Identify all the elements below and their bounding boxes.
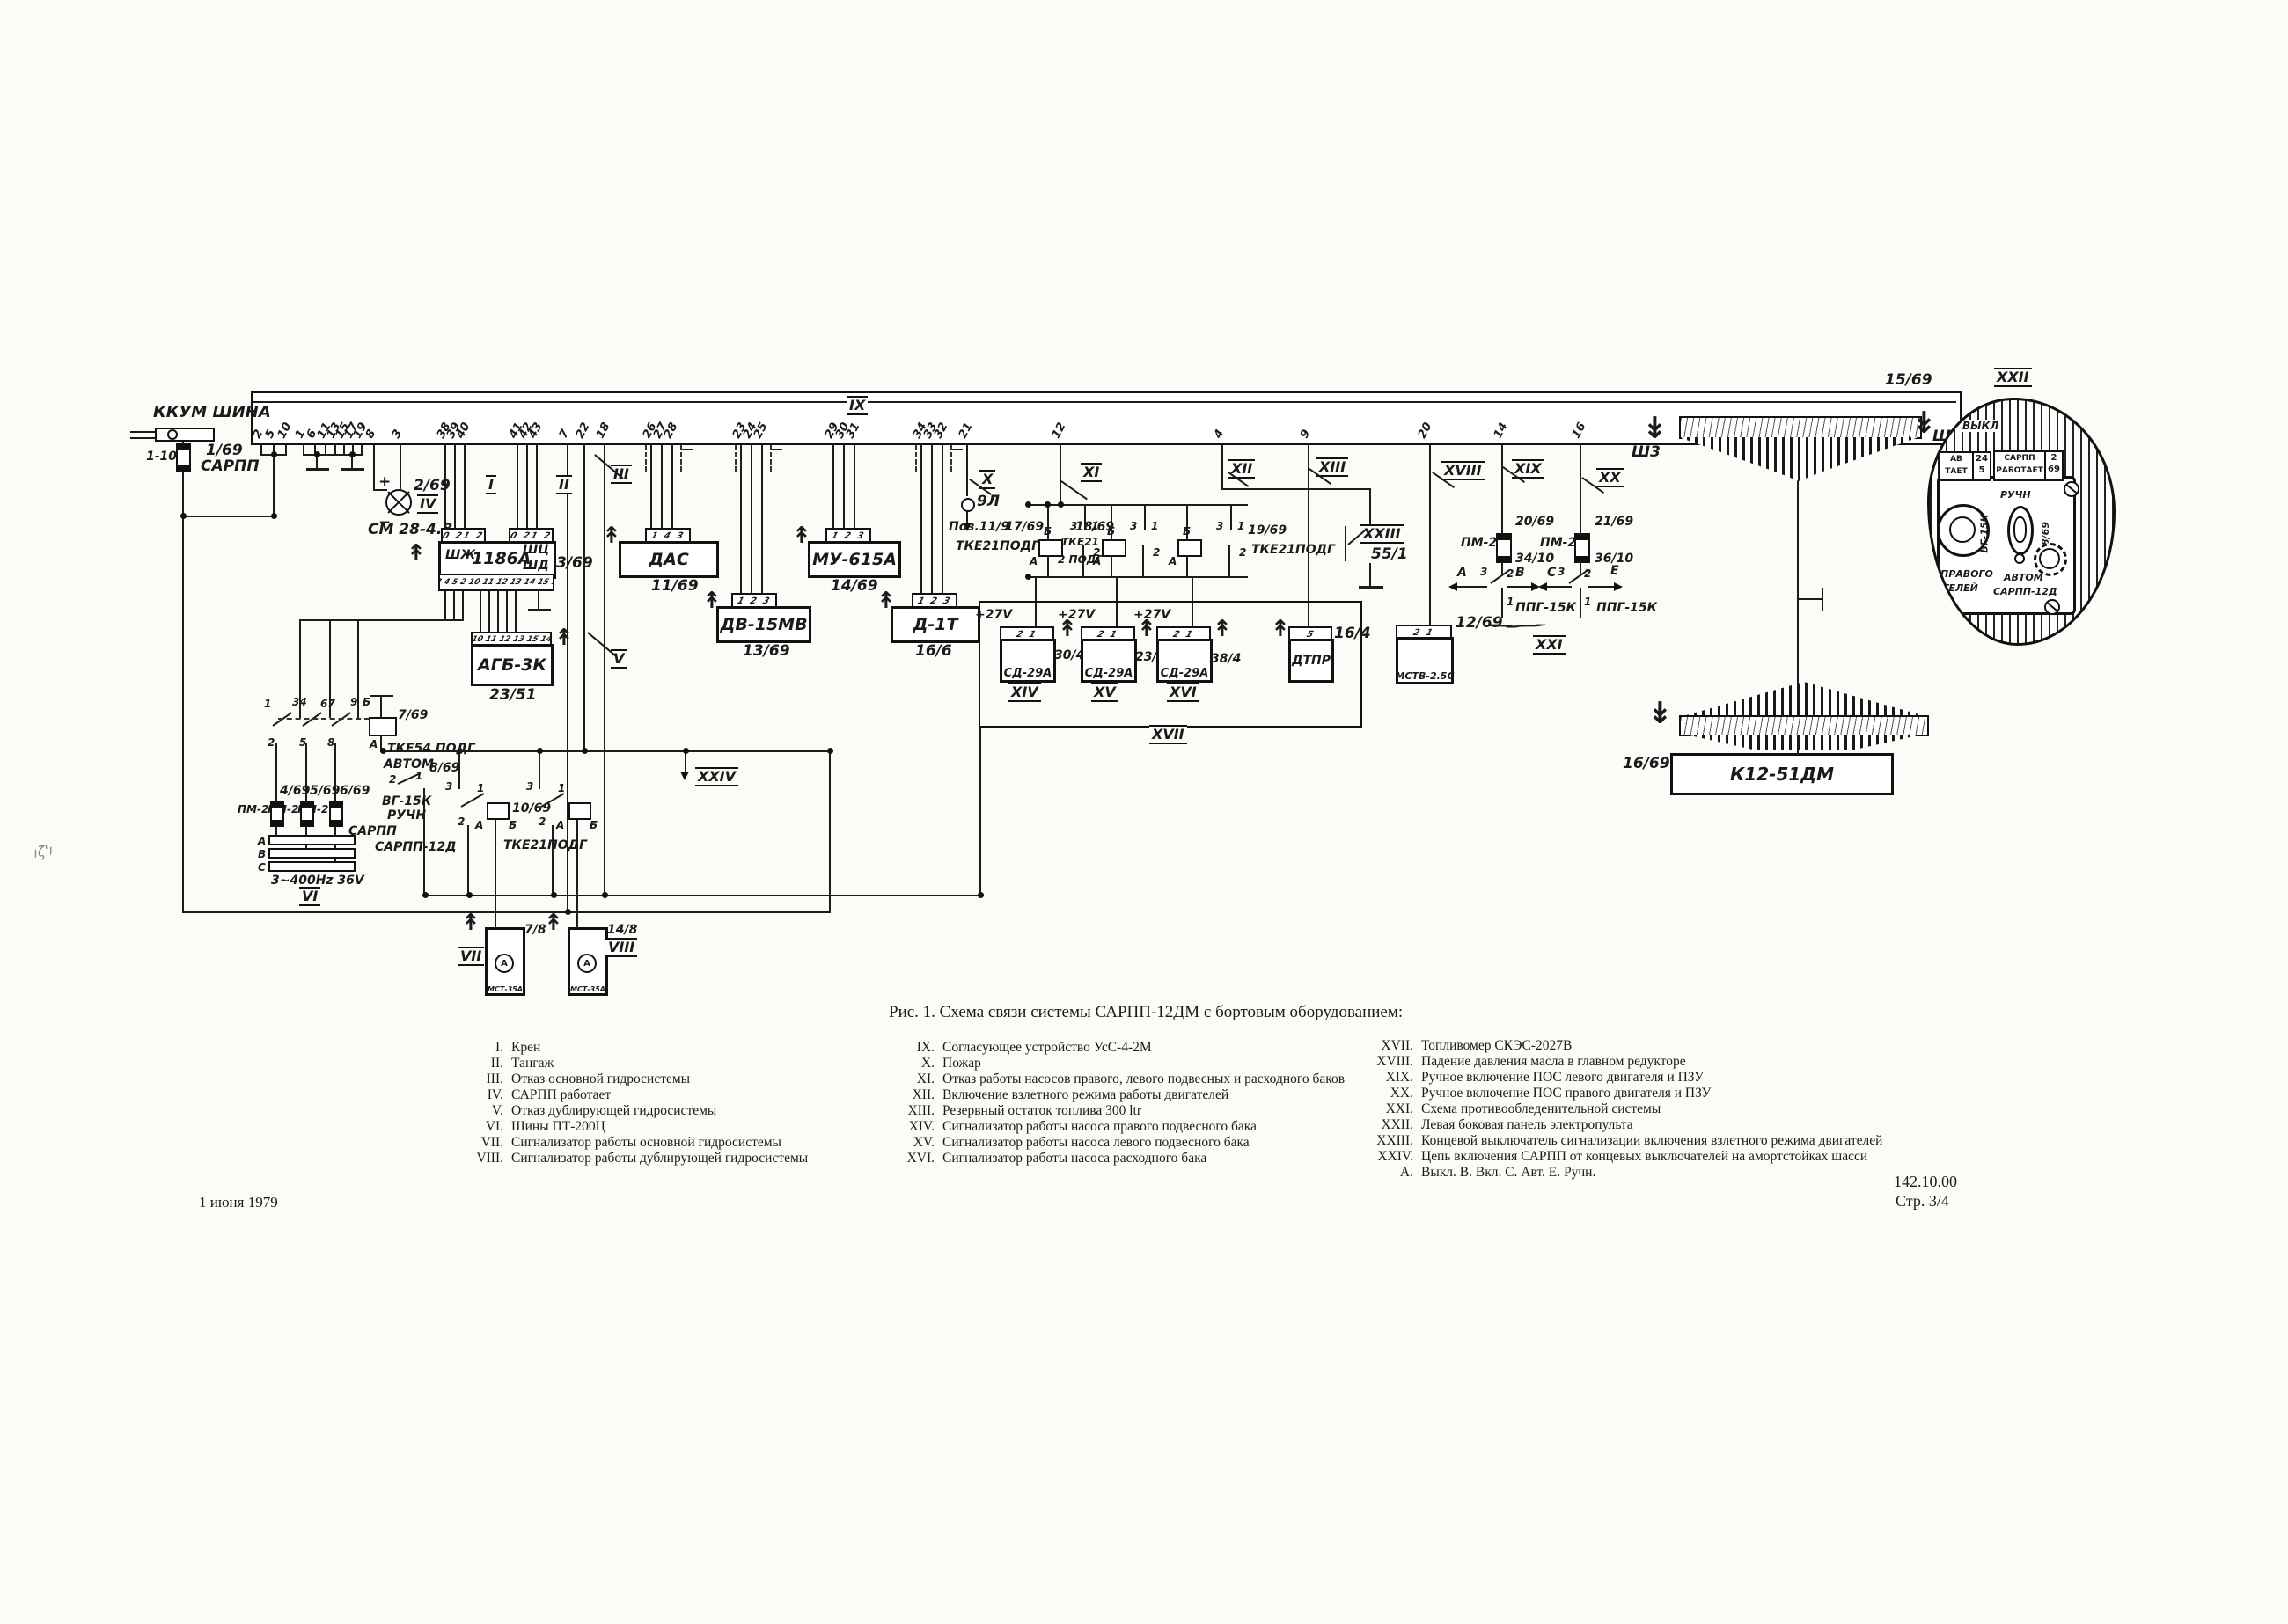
- tke54-ref: 7/69: [398, 709, 428, 721]
- legend-text: Падение давления масла в главном редукто…: [1421, 1054, 1686, 1070]
- tag-viii: VIII: [605, 938, 637, 957]
- panel-connector-inner: [2039, 548, 2060, 569]
- wire: [1588, 586, 1617, 588]
- legend-text: Сигнализатор работы дублирующей гидросис…: [511, 1151, 808, 1167]
- r10b-coil: [568, 802, 591, 820]
- sarpp-label: САРПП: [348, 825, 397, 838]
- contact-3: 3: [1130, 521, 1137, 531]
- panel-txt2: ТЕЛЕЙ: [1942, 583, 1978, 593]
- legend-numeral: XXIII.: [1345, 1133, 1421, 1149]
- arrow-up-icon: ↟: [407, 542, 426, 565]
- mst2-sym: А: [577, 954, 597, 973]
- legend-numeral: IV.: [458, 1087, 511, 1103]
- wire: [1111, 554, 1112, 578]
- phase-bar-b: [268, 848, 356, 859]
- feeder-ref: 1/69: [206, 443, 243, 458]
- legend-item: XVI.Сигнализатор работы насоса расходног…: [880, 1151, 1373, 1167]
- legend-text: Крен: [511, 1040, 540, 1056]
- pins: 3 4 5 2 10 11 12 13 14 15 1: [438, 578, 554, 587]
- pins: 2 1: [1016, 630, 1039, 640]
- ind1-text: АВТАЕТ: [1940, 453, 1972, 479]
- panel-ruchn: РУЧН: [2000, 490, 2031, 500]
- legend-numeral: I.: [458, 1040, 511, 1056]
- panel-ind-sarpp: САРППРАБОТАЕТ 269: [1993, 450, 2064, 481]
- legend-text: Сигнализатор работы основной гидросистем…: [511, 1135, 781, 1151]
- mu-box: МУ-615А: [808, 541, 901, 578]
- legend-text: Левая боковая панель электропульта: [1421, 1117, 1633, 1133]
- legend-text: Ручное включение ПОС правого двигателя и…: [1421, 1086, 1711, 1101]
- legend-item: VI.Шины ПТ-200Ц: [458, 1119, 836, 1135]
- wire: [1186, 554, 1188, 578]
- legend-item: XIII.Резервный остаток топлива 300 ltr: [880, 1103, 1373, 1119]
- leader: [1061, 480, 1088, 500]
- wire: [370, 695, 393, 697]
- wire: [1359, 586, 1383, 589]
- lamp-name: СМ 28-4.8: [368, 523, 452, 538]
- fuse-1-10: [176, 443, 191, 472]
- pins: 20 21 23: [441, 531, 486, 541]
- cb: Б: [363, 697, 370, 707]
- relay17-ref: 17/69: [1005, 521, 1044, 533]
- panel-vg: ВГ-15К: [1980, 514, 1990, 552]
- arrow-up-icon: ↟: [602, 524, 621, 547]
- dv-box: ДВ-15МВ: [716, 606, 811, 643]
- r10a-contact: [461, 793, 485, 808]
- wire: [1230, 506, 1232, 530]
- k12-box: К12-51ДМ: [1670, 753, 1894, 795]
- wire: [497, 588, 499, 632]
- c1: 1: [264, 699, 271, 709]
- n1: 1: [558, 783, 565, 794]
- legend-text: Концевой выключатель сигнализации включе…: [1421, 1133, 1882, 1149]
- mst1-sym: А: [495, 954, 514, 973]
- fuse20-ref: 20/69: [1515, 516, 1554, 528]
- avtom-label: АВТОМ: [384, 758, 434, 771]
- arrow-down-icon: [680, 772, 689, 780]
- ppg-label: ППГ-15К: [1596, 602, 1657, 614]
- legend-text: Шины ПТ-200Ц: [511, 1119, 605, 1135]
- pm2-label: ПМ-2: [238, 804, 268, 815]
- shield-symbol: [735, 445, 772, 472]
- junction-dot: [1025, 501, 1031, 508]
- xxi-brace: ⏟: [1491, 614, 1546, 626]
- wire: [495, 818, 496, 929]
- battery-bus-symbol: [155, 428, 215, 442]
- junction-dot: [1045, 501, 1051, 508]
- sw36-ref: 36/10: [1595, 552, 1633, 565]
- wire: [682, 449, 693, 450]
- dir-v: В: [1515, 567, 1525, 579]
- a: А: [475, 820, 483, 830]
- wire: [1544, 586, 1572, 588]
- a: А: [556, 820, 564, 830]
- wire: [464, 442, 466, 530]
- doc-page: Стр. 3/4: [1896, 1193, 1949, 1209]
- legend-numeral: II.: [458, 1056, 511, 1072]
- legend-numeral: XXIV.: [1345, 1149, 1421, 1165]
- wire: [130, 437, 157, 439]
- arrow-up-icon: ↟: [1271, 618, 1290, 640]
- legend-item: III.Отказ основной гидросистемы: [458, 1072, 836, 1087]
- legend-item: V.Отказ дублирующей гидросистемы: [458, 1103, 836, 1119]
- shield-symbol: [645, 445, 682, 472]
- mstv-box: МСТВ-2.5С: [1396, 637, 1454, 684]
- legend-text: Тангаж: [511, 1056, 554, 1072]
- pins: 1 2 3: [830, 531, 866, 541]
- legend-item: XIV.Сигнализатор работы насоса правого п…: [880, 1119, 1373, 1135]
- phase-c: С: [258, 862, 266, 873]
- legend-col2: IX.Согласующее устройство УсС-4-2МX.Пожа…: [880, 1040, 1373, 1167]
- doc-code: 142.10.00: [1894, 1174, 1957, 1189]
- r10b-contact: [541, 793, 565, 808]
- sd3-box: СД-29А: [1156, 639, 1213, 683]
- n3: 3: [1558, 567, 1565, 577]
- legend-item: XXI.Схема противообледенительной системы: [1345, 1101, 2040, 1117]
- tag-xxiv: XXIV: [695, 767, 738, 786]
- dtpr-box: ДТПР: [1288, 639, 1334, 683]
- pm2-label: ПМ-2: [1461, 537, 1497, 549]
- pm2-fuse-21: [1574, 533, 1590, 563]
- tag-xv: XV: [1091, 683, 1118, 702]
- legend-text: Отказ дублирующей гидросистемы: [511, 1103, 716, 1119]
- sw551-ref: 55/1: [1371, 547, 1408, 562]
- terminal-9l: [961, 498, 975, 512]
- n3: 3: [1480, 567, 1487, 577]
- tag-xxiii: XXIII: [1360, 524, 1404, 544]
- wire: [526, 442, 528, 530]
- wire: [1822, 588, 1823, 611]
- arrow-up-icon: ↟: [1213, 618, 1232, 640]
- r10a-coil: [487, 802, 510, 820]
- contact-link: [278, 718, 370, 720]
- tag-xvii: XVII: [1149, 725, 1187, 744]
- legend-item: VIII.Сигнализатор работы дублирующей гид…: [458, 1151, 836, 1167]
- legend-text: Пожар: [942, 1056, 981, 1072]
- wire: [316, 456, 318, 468]
- wire: [772, 449, 782, 450]
- bus-right-ref: 15/69: [1885, 373, 1932, 388]
- r10-name: ТКЕ21ПОДГ: [503, 839, 587, 852]
- c67: 67: [320, 699, 335, 709]
- wire: [275, 743, 277, 801]
- legend-item: XXII.Левая боковая панель электропульта: [1345, 1117, 2040, 1133]
- legend-text: Включение взлетного режима работы двигат…: [942, 1087, 1228, 1103]
- vg-name: ВГ-15К: [382, 795, 431, 808]
- legend-col3: XVII.Топливомер СКЭС-2027ВXVIII.Падение …: [1345, 1038, 2040, 1181]
- wire: [854, 442, 855, 530]
- n2: 2: [1584, 568, 1591, 579]
- legend-text: Топливомер СКЭС-2027В: [1421, 1038, 1572, 1054]
- relay19-ref: 19/69: [1248, 524, 1287, 537]
- sym: А: [501, 959, 508, 969]
- arrow-up-icon: ↟: [544, 911, 563, 934]
- dir-e: Е: [1610, 565, 1619, 577]
- doc-date: 1 июня 1979: [199, 1195, 278, 1210]
- panel-sarpp: САРПП-12Д: [1993, 587, 2057, 596]
- legend-numeral: X.: [880, 1056, 942, 1072]
- junction-dot: [314, 451, 320, 457]
- junction-dot: [349, 451, 356, 457]
- legend-numeral: XIII.: [880, 1103, 942, 1119]
- legend-text: Согласующее устройство УсС-4-2М: [942, 1040, 1152, 1056]
- legend-numeral: VIII.: [458, 1151, 511, 1167]
- panel-toggle-lever[interactable]: [2013, 516, 2027, 543]
- arrow-up-icon: ↟: [792, 524, 811, 547]
- wire: [400, 442, 401, 489]
- n1: 1: [1584, 596, 1591, 607]
- tke54-name: ТКЕ54 ПОДГ: [387, 743, 475, 755]
- tag-ix: IX: [847, 396, 868, 415]
- wire: [966, 442, 968, 496]
- coil-a: А: [1169, 556, 1177, 567]
- legend-numeral: XV.: [880, 1135, 942, 1151]
- ind1-ref: 245: [1972, 453, 1990, 479]
- junction-dot: [1058, 501, 1064, 508]
- b: Б: [590, 820, 598, 830]
- vg-ref: 8/69: [429, 762, 459, 774]
- junction-dot: [271, 513, 277, 519]
- tag-ii: II: [556, 475, 572, 494]
- tag-xx: XX: [1596, 468, 1624, 487]
- legend-item: VII.Сигнализатор работы основной гидроси…: [458, 1135, 836, 1151]
- legend-text: САРПП работает: [511, 1087, 611, 1103]
- legend-item: X.Пожар: [880, 1056, 1373, 1072]
- phase-a: А: [258, 836, 266, 846]
- legend-numeral: XIV.: [880, 1119, 942, 1135]
- legend-item: XX.Ручное включение ПОС правого двигател…: [1345, 1086, 2040, 1101]
- wire: [1047, 554, 1049, 578]
- legend-item: IV.САРПП работает: [458, 1087, 836, 1103]
- n2: 2: [389, 774, 396, 785]
- tag-xvi: XVI: [1167, 683, 1199, 702]
- legend-text: Сигнализатор работы насоса правого подве…: [942, 1119, 1257, 1135]
- sarpp12-label: САРПП-12Д: [375, 841, 457, 853]
- wire: [515, 588, 517, 632]
- sd1-box: СД-29А: [1000, 639, 1056, 683]
- d1t-ref: 16/6: [915, 644, 952, 659]
- b1186-shc: ШЦ: [523, 544, 549, 556]
- junction-dot: [180, 513, 187, 519]
- wire: [1221, 488, 1371, 490]
- battery-bus-terminal: [167, 429, 178, 440]
- panel-lamp-inner: [1949, 516, 1976, 543]
- contact-1: 1: [1237, 521, 1244, 531]
- arrow-up-icon: ↟: [876, 589, 896, 612]
- legend-numeral: VII.: [458, 1135, 511, 1151]
- wire: [1797, 598, 1823, 600]
- mst2-ref: 14/8: [607, 924, 637, 936]
- battery-bus-label: ККУМ ШИНА: [153, 405, 271, 421]
- junction-dot: [537, 748, 543, 754]
- legend-numeral: XX.: [1345, 1086, 1421, 1101]
- wire: [444, 588, 446, 621]
- sd3-ref: 38/4: [1211, 653, 1241, 665]
- phase-bar-a: [268, 835, 356, 845]
- sh3-label: Ш3: [1632, 445, 1661, 460]
- c9: 9: [350, 697, 357, 707]
- ca: А: [370, 739, 378, 750]
- legend-numeral: XIX.: [1345, 1070, 1421, 1086]
- wire: [832, 442, 834, 530]
- mst1-ref: 7/8: [524, 924, 546, 936]
- ind2-ref: 269: [2044, 452, 2062, 479]
- wire: [1429, 442, 1431, 625]
- legend-numeral: III.: [458, 1072, 511, 1087]
- junction-dot: [422, 892, 429, 898]
- junction-dot: [827, 748, 833, 754]
- wire: [462, 588, 464, 621]
- legend-item: XXIII.Концевой выключатель сигнализации …: [1345, 1133, 2040, 1149]
- arrow-left-icon: [1448, 582, 1457, 591]
- wire: [528, 609, 551, 611]
- legend-item: XVII.Топливомер СКЭС-2027В: [1345, 1038, 2040, 1054]
- wire: [506, 588, 508, 632]
- wire: [306, 468, 329, 471]
- sd2-v: +27V: [1058, 609, 1095, 621]
- relay18-name1: ТКЕ21: [1061, 537, 1099, 547]
- contact-3: 3: [1216, 521, 1223, 531]
- wire: [1501, 442, 1503, 533]
- wire: [341, 468, 364, 471]
- legend-item: II.Тангаж: [458, 1056, 836, 1072]
- contact-2: 2: [1239, 547, 1246, 558]
- das-box: ДАС: [619, 541, 719, 578]
- pm2-fuse-5: [300, 801, 314, 827]
- legend-text: Резервный остаток топлива 300 ltr: [942, 1103, 1141, 1119]
- pins: 10 11 12 13 15 14: [471, 635, 552, 644]
- contact-1: 1: [1151, 521, 1158, 531]
- wire: [1228, 545, 1230, 578]
- wire: [1221, 442, 1223, 490]
- legend-item: XIX.Ручное включение ПОС левого двигател…: [1345, 1070, 2040, 1086]
- b: Б: [509, 820, 517, 830]
- dir-a: А: [1457, 567, 1467, 579]
- sarpp-lamp: [385, 489, 412, 516]
- legend-item: I.Крен: [458, 1040, 836, 1056]
- pm2-ref5: 5/69: [310, 785, 340, 797]
- lamp-plus: +: [378, 475, 391, 490]
- wire: [273, 456, 275, 517]
- tag-iv: IV: [417, 494, 438, 514]
- legend-text: Отказ основной гидросистемы: [511, 1072, 690, 1087]
- tag-iii: III: [611, 465, 632, 484]
- harness-bottom-strip: [1679, 715, 1929, 736]
- relay17-name: ТКЕ21ПОДГ: [956, 540, 1039, 552]
- pencil-mark: ıζ'ı: [33, 841, 55, 861]
- tag-xiii: XIII: [1316, 457, 1348, 477]
- junction-dot: [271, 451, 277, 457]
- junction-dot: [551, 892, 557, 898]
- tag-xi: XI: [1081, 463, 1102, 482]
- coil-b: Б: [1183, 526, 1191, 537]
- harness-bottom-fan-top: [1686, 682, 1922, 715]
- wire: [1060, 442, 1061, 506]
- relay18-ref: 18/69: [1075, 521, 1114, 533]
- junction-dot: [466, 892, 473, 898]
- wire: [480, 588, 481, 632]
- fuse-1-10-label: 1-10: [146, 450, 177, 463]
- wire: [517, 442, 518, 530]
- dtpr-ref: 16/4: [1334, 626, 1371, 641]
- agb-box: АГБ-3К: [471, 644, 554, 686]
- pm2-fuse-4: [270, 801, 284, 827]
- pins: 20 21 23: [509, 531, 554, 541]
- legend-col1: I.КренII.ТангажIII.Отказ основной гидрос…: [458, 1040, 836, 1167]
- c2: 2: [268, 737, 275, 748]
- tag-xiv: XIV: [1008, 683, 1041, 702]
- b1186-ref: 3/69: [556, 556, 593, 571]
- mst-name: МСТ-35А: [570, 985, 605, 993]
- legend-item: IX.Согласующее устройство УсС-4-2М: [880, 1040, 1373, 1056]
- wire: [829, 750, 831, 913]
- wire: [182, 468, 184, 913]
- wire: [843, 442, 845, 530]
- pins: 1 2 3: [736, 596, 772, 606]
- sd3-v: +27V: [1133, 609, 1170, 621]
- wire: [424, 895, 981, 896]
- b1186-conn-bottom: 3 4 5 2 10 11 12 13 14 15 1: [438, 574, 554, 591]
- leader: [588, 632, 617, 656]
- relay18-coil: [1102, 539, 1126, 557]
- dv-ref: 13/69: [743, 644, 790, 659]
- wire: [1797, 480, 1799, 684]
- harness-top-fan: [1679, 437, 1918, 481]
- arrow-right-icon: [1614, 582, 1623, 591]
- legend-numeral: IX.: [880, 1040, 942, 1056]
- legend-numeral: XVII.: [1345, 1038, 1421, 1054]
- tke54-coil: [369, 717, 397, 736]
- wire: [351, 456, 353, 468]
- tag-xxii: XXII: [1994, 368, 2032, 387]
- tag-vi: VI: [299, 887, 320, 906]
- wire: [552, 825, 554, 896]
- wire: [1369, 490, 1371, 528]
- mu-ref: 14/69: [831, 579, 878, 594]
- wire: [1580, 588, 1581, 618]
- wire: [182, 911, 831, 913]
- screw-icon: [2064, 481, 2079, 497]
- wire: [488, 588, 490, 632]
- wire: [1144, 506, 1146, 530]
- poz-label: Поз.11/9: [949, 521, 1009, 533]
- wire: [1142, 545, 1144, 578]
- c34: 34: [292, 697, 307, 707]
- legend-text: Цепь включения САРПП от концевых выключа…: [1421, 1149, 1867, 1165]
- shield-symbol: [915, 445, 952, 472]
- legend-numeral: XII.: [880, 1087, 942, 1103]
- tag-xxi: XXI: [1533, 635, 1566, 655]
- legend-numeral: XXI.: [1345, 1101, 1421, 1117]
- feeder-name: САРПП: [201, 459, 260, 474]
- arrow-up-icon: ↟: [554, 626, 574, 649]
- relay19-coil: [1177, 539, 1202, 557]
- legend-text: Сигнализатор работы насоса расходного ба…: [942, 1151, 1206, 1167]
- n2: 2: [539, 816, 546, 827]
- wire: [467, 825, 469, 896]
- d1t-box: Д-1Т: [891, 606, 980, 643]
- ind2-text: САРППРАБОТАЕТ: [1995, 452, 2044, 479]
- wire: [130, 431, 157, 433]
- tag-xviii: XVIII: [1441, 461, 1485, 480]
- legend-text: Отказ работы насосов правого, левого под…: [942, 1072, 1345, 1087]
- pins: 1 2 3: [916, 596, 952, 606]
- sd1-v: +27V: [975, 609, 1012, 621]
- sym: А: [583, 959, 590, 969]
- legend-item: XII.Включение взлетного режима работы дв…: [880, 1087, 1373, 1103]
- junction-dot: [565, 909, 571, 915]
- phase-bar-c: [268, 861, 356, 872]
- mst-name: МСТ-35А: [488, 985, 523, 993]
